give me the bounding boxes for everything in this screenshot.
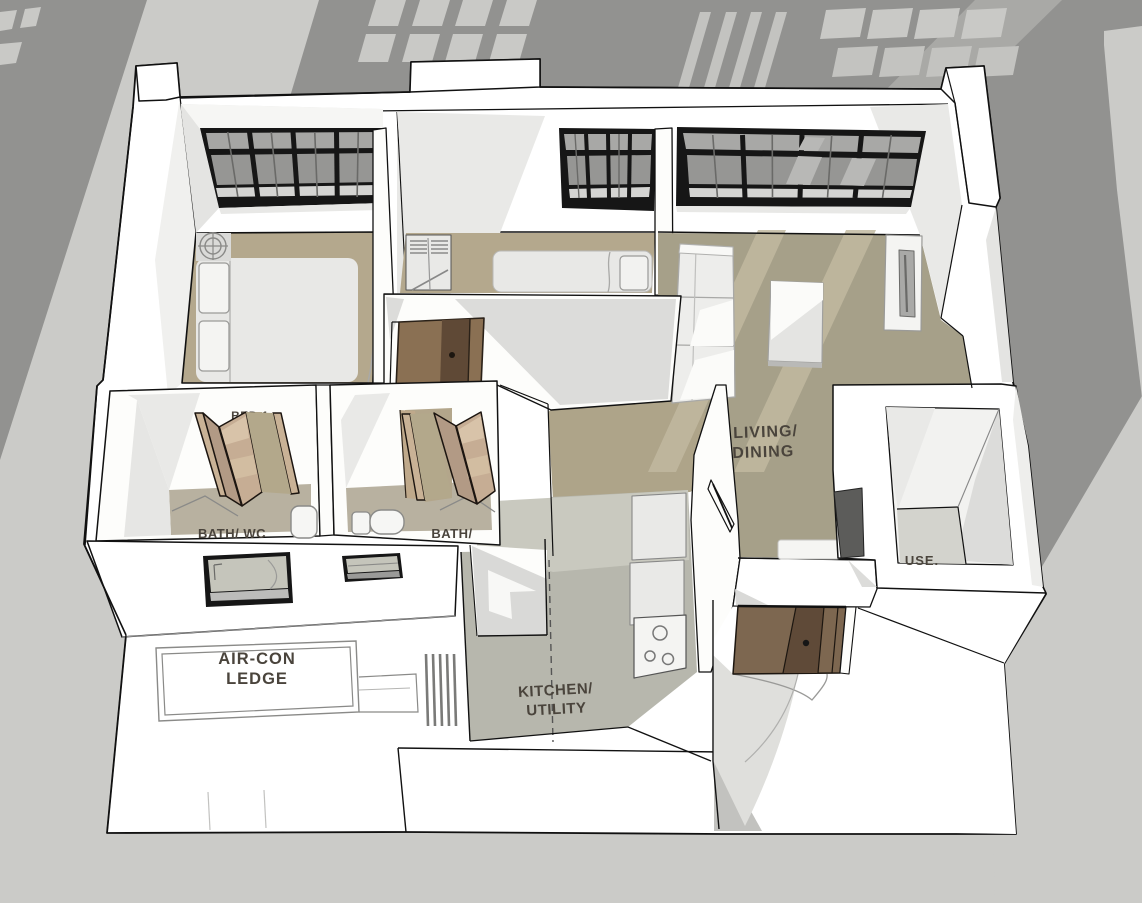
svg-text:BATH/: BATH/ (431, 526, 472, 541)
svg-text:UTILITY: UTILITY (526, 699, 587, 719)
svg-text:DINING: DINING (732, 443, 795, 462)
svg-text:LEDGE: LEDGE (226, 670, 288, 688)
svg-text:USE.: USE. (905, 553, 939, 568)
svg-text:BATH/ WC: BATH/ WC (198, 526, 266, 541)
svg-text:AIR-CON: AIR-CON (218, 650, 296, 668)
svg-text:LIVING/: LIVING/ (733, 423, 798, 442)
